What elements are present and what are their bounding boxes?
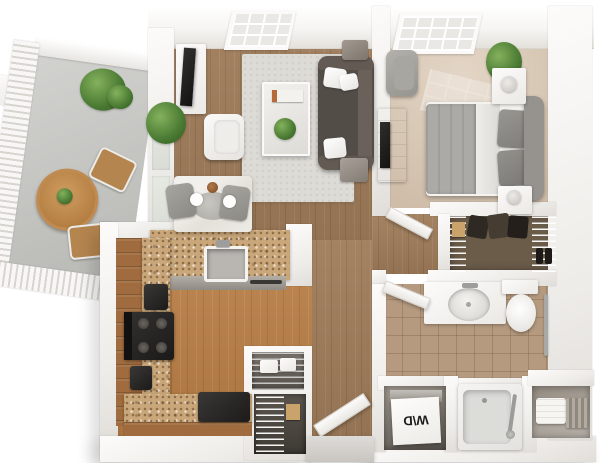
toilet-bowl: [506, 294, 536, 332]
towel-bar: [544, 294, 548, 356]
floorplan-3d-render: W\D: [0, 0, 600, 463]
closet-left-wall: [438, 214, 450, 272]
range-burner: [138, 342, 149, 353]
sofa-pillow: [323, 137, 347, 159]
bed-duvet: [426, 104, 478, 194]
toilet-tank: [502, 280, 538, 294]
divider-laundry-tub: [444, 376, 458, 452]
side-table: [340, 158, 368, 182]
bathtub-basin: [463, 390, 511, 444]
pantry-upper-cubby: [252, 352, 304, 390]
linen-towels: [536, 398, 566, 424]
range-burner: [138, 318, 149, 329]
armchair-cushion: [394, 56, 414, 90]
nightstand-lamp: [507, 190, 521, 204]
closet-shelf-box: [452, 222, 465, 237]
storage-box: [280, 358, 296, 371]
range-stove: [124, 312, 174, 360]
toaster-oven: [144, 284, 168, 310]
living-room-plant: [146, 102, 186, 144]
bedroom-tv: [380, 122, 390, 168]
coffee-table: [262, 82, 310, 156]
dinner-plate: [190, 193, 203, 206]
coffee-maker: [130, 366, 152, 390]
countertop-appliance: [198, 392, 250, 422]
bed-folded-blanket: [476, 104, 500, 194]
bedroom-window: [392, 13, 483, 54]
range-burner: [156, 318, 167, 329]
pantry-tall-cubby: [254, 394, 306, 454]
kitchen-faucet: [216, 240, 230, 247]
sink-faucet: [462, 283, 478, 288]
sofa-pillow: [339, 73, 360, 92]
linen-top-wall: [528, 370, 594, 386]
living-room-window: [224, 11, 296, 50]
nightstand-lamp: [501, 76, 517, 92]
entry-threshold: [306, 436, 374, 462]
dishwasher-handle: [250, 280, 282, 284]
shower-head: [506, 430, 515, 439]
bed-headboard: [524, 96, 544, 200]
tub-drain: [482, 398, 487, 403]
washer-dryer-label: W\D: [391, 397, 441, 445]
range-control-panel: [124, 312, 132, 360]
back-wall: [148, 6, 594, 49]
kitchen-sink: [204, 246, 248, 282]
hanging-clothes: [507, 215, 529, 239]
sink-drain: [466, 302, 471, 307]
bedroom-armchair: [386, 50, 418, 96]
coffee-table-plant: [274, 118, 296, 140]
shoes: [545, 248, 552, 264]
range-burner: [156, 342, 167, 353]
sofa-back: [358, 60, 372, 166]
pantry-box: [286, 404, 300, 420]
armchair-cushion: [214, 120, 240, 154]
wire-shelving: [256, 396, 284, 452]
linen-basket: [566, 398, 588, 428]
living-armchair: [204, 114, 244, 160]
bathtub: [458, 384, 522, 450]
dinner-plate: [223, 195, 236, 208]
kitchen-bottom-cabinet-face: [124, 422, 252, 436]
sofa: [318, 56, 374, 170]
washer-dryer-box: W\D: [391, 397, 441, 445]
table-centerpiece: [207, 182, 218, 193]
storage-box: [260, 360, 278, 373]
coffee-table-books: [272, 90, 303, 102]
shoes: [536, 248, 543, 264]
side-table: [342, 40, 368, 60]
